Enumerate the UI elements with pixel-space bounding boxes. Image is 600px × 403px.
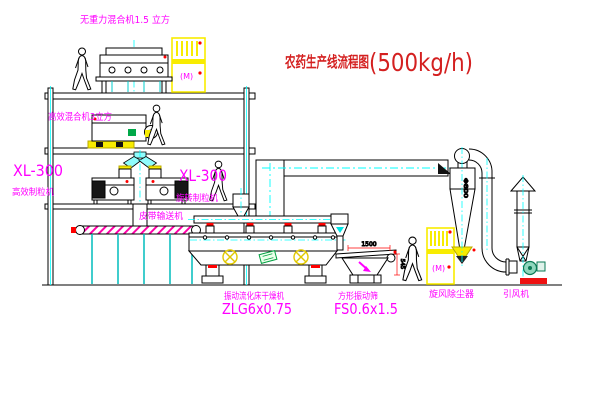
title-text: 农药生产线流程图 <box>284 53 369 71</box>
cad-drawing: 农药生产线流程图 (500kg/h) (M) <box>0 0 600 403</box>
dim-screen-length: 1500 <box>361 241 376 248</box>
label-cyclone: 旋风除尘器 <box>429 288 474 300</box>
title-capacity: (500kg/h) <box>369 48 473 77</box>
label-mixer-mid: 高效混合机3立方 <box>48 111 112 123</box>
dim-cyclone-diameter: Φ800 <box>462 178 468 199</box>
conveyor-motor <box>71 227 76 233</box>
floor-middle <box>45 148 255 154</box>
label-mixer-top: 无重力混合机1.5 立方 <box>80 14 170 26</box>
label-granulator-right-model: XL-300 <box>179 166 227 185</box>
label-dryer-model: ZLG6x0.75 <box>222 300 292 318</box>
label-granulator-left-model: XL-300 <box>13 161 63 180</box>
cabinet-mark: (M) <box>180 72 193 81</box>
control-cabinet-top: (M) <box>172 38 205 92</box>
label-granulator-left-name: 高效制粒机 <box>12 186 54 198</box>
process-flow-diagram: 农药生产线流程图 (500kg/h) (M) <box>0 0 600 403</box>
floor-top <box>45 93 255 99</box>
label-granulator-right-name: 旋转制粒机 <box>176 192 218 204</box>
fan-base <box>520 278 547 284</box>
indicator-light <box>448 230 451 233</box>
indicator-light <box>447 265 450 268</box>
label-fan: 引风机 <box>503 288 529 300</box>
indicator-light <box>198 41 201 44</box>
dim-screen-height: 545 <box>399 259 405 270</box>
cabinet-mark: (M) <box>432 264 445 273</box>
control-cabinet-ground: (M) <box>427 228 454 284</box>
indicator-light <box>198 71 201 74</box>
floor-lower <box>45 204 255 209</box>
label-belt-conveyor: 皮带输送机 <box>139 210 183 222</box>
label-screen-model: FS0.6x1.5 <box>334 300 398 318</box>
